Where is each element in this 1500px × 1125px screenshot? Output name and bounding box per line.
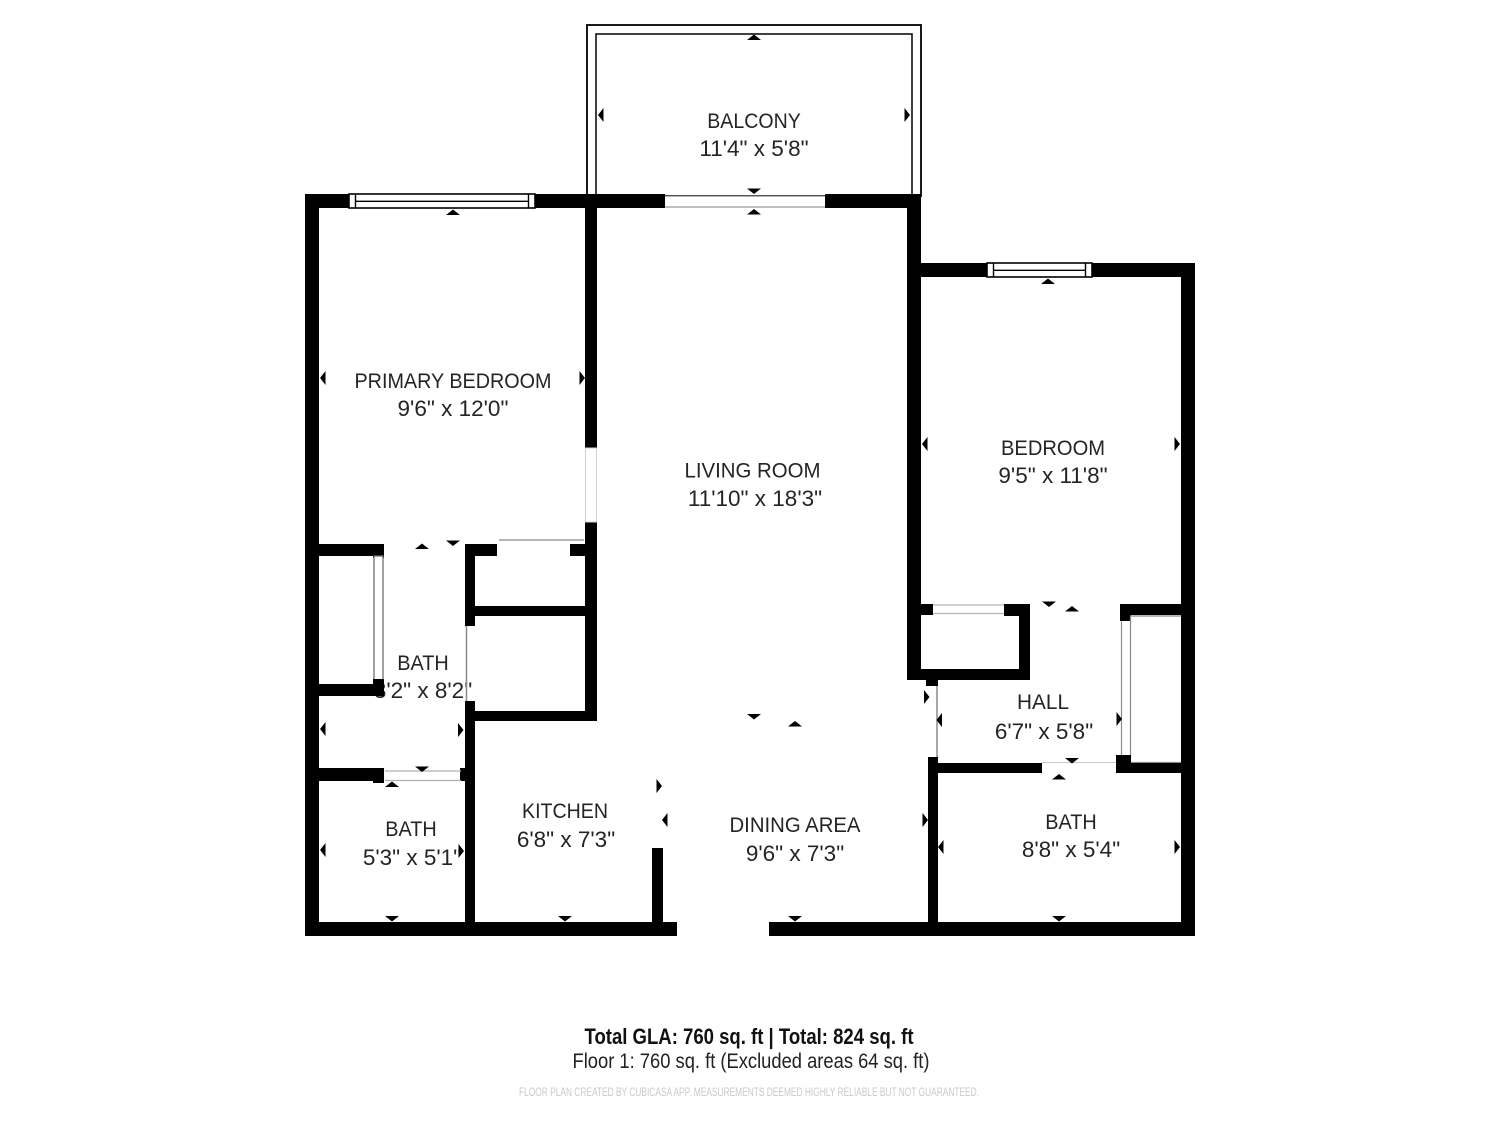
svg-text:6'8" x 7'3": 6'8" x 7'3" [517,827,615,852]
svg-text:BALCONY: BALCONY [707,110,801,133]
svg-text:DINING AREA: DINING AREA [730,814,861,837]
svg-text:Floor 1: 760 sq. ft (Excluded: Floor 1: 760 sq. ft (Excluded areas 64 s… [573,1050,930,1073]
svg-text:FLOOR PLAN CREATED BY CUBICASA: FLOOR PLAN CREATED BY CUBICASA APP. MEAS… [519,1087,979,1099]
svg-text:BATH: BATH [385,818,437,841]
svg-text:BATH: BATH [397,652,449,675]
svg-text:3'2" x 8'2": 3'2" x 8'2" [374,678,472,703]
svg-text:KITCHEN: KITCHEN [522,800,608,823]
svg-text:PRIMARY BEDROOM: PRIMARY BEDROOM [355,370,552,393]
svg-text:11'10" x 18'3": 11'10" x 18'3" [688,486,822,511]
svg-text:5'3" x 5'1": 5'3" x 5'1" [363,845,461,870]
svg-text:Total GLA: 760 sq. ft | Total:: Total GLA: 760 sq. ft | Total: 824 sq. f… [585,1024,915,1049]
svg-text:HALL: HALL [1017,691,1069,714]
svg-text:9'6" x 7'3": 9'6" x 7'3" [746,841,844,866]
svg-text:8'8" x 5'4": 8'8" x 5'4" [1022,837,1120,862]
svg-text:11'4" x 5'8": 11'4" x 5'8" [699,136,808,161]
svg-text:9'6" x 12'0": 9'6" x 12'0" [398,396,509,421]
svg-text:9'5" x 11'8": 9'5" x 11'8" [998,463,1107,488]
svg-text:LIVING ROOM: LIVING ROOM [685,460,821,483]
svg-text:BATH: BATH [1045,811,1097,834]
svg-text:6'7" x 5'8": 6'7" x 5'8" [995,719,1093,744]
svg-text:BEDROOM: BEDROOM [1001,437,1105,460]
